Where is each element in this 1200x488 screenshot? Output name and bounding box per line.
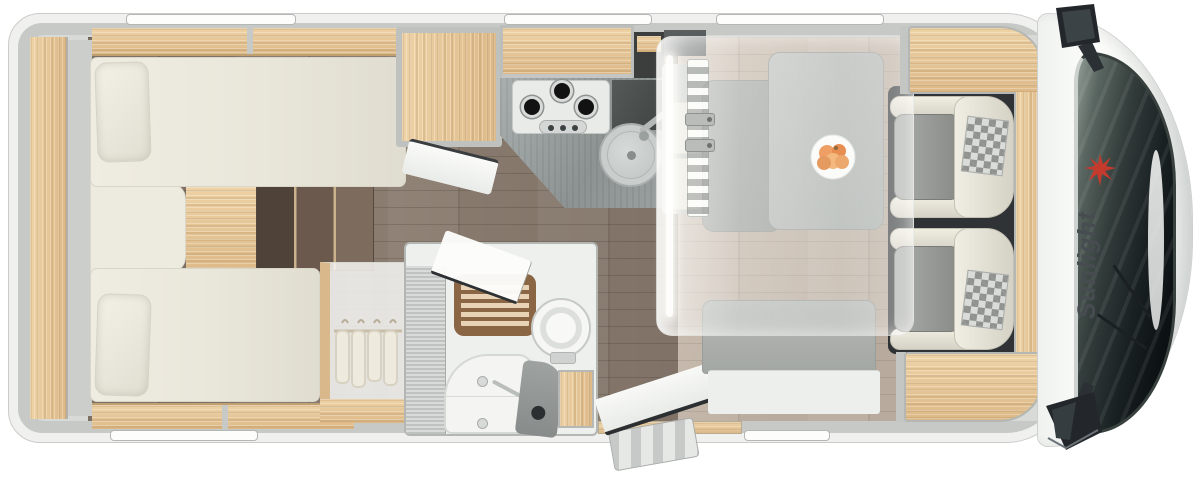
pillow-bottom-bed xyxy=(94,293,152,397)
gas-hob xyxy=(512,80,610,134)
seat-checker-pillow xyxy=(961,116,1010,177)
hood-highlight xyxy=(1148,150,1164,330)
window-bottom-rear xyxy=(110,430,258,441)
hob-knobs xyxy=(539,120,587,134)
wardrobe-foot-of-bed xyxy=(396,27,502,147)
gas-burner-icon xyxy=(521,96,543,118)
cab-surround-shelf-bottom xyxy=(904,352,1044,422)
bed-latch xyxy=(685,113,715,126)
window-bottom-dinette xyxy=(744,430,830,441)
bed-ladder xyxy=(687,59,709,217)
sink-icon xyxy=(599,123,663,187)
gas-burner-icon xyxy=(575,96,597,118)
wardrobe-hanging xyxy=(320,262,404,400)
wardrobe-base-shelf xyxy=(320,399,404,423)
motorhome-floorplan: Sunlight xyxy=(0,0,1200,488)
wardrobe-interior xyxy=(402,33,496,141)
bathroom-tambour-wall xyxy=(406,266,446,434)
brand-logo-text: Sunlight xyxy=(1074,180,1100,350)
rear-wall-shelf xyxy=(30,37,68,419)
cab-surround-shelf-top xyxy=(908,26,1044,94)
center-infill-cushion xyxy=(90,183,186,273)
hanger-icon-group xyxy=(330,263,404,401)
fruit-plate-icon xyxy=(810,134,856,180)
window-top-rear xyxy=(126,14,296,25)
side-mirror-top-icon xyxy=(1048,2,1114,74)
bed-mid-platform xyxy=(186,183,256,273)
overhead-cabinet-bottom-bedroom xyxy=(92,403,354,429)
gas-burner-icon xyxy=(551,80,573,102)
cabinet-divider xyxy=(247,28,253,54)
seat-checker-pillow xyxy=(961,270,1010,331)
window-top-kitchen xyxy=(504,14,652,25)
bed-steps xyxy=(256,183,374,271)
side-mirror-bottom-icon xyxy=(1036,380,1116,458)
toilet-icon xyxy=(531,298,591,358)
bed-latch xyxy=(685,139,715,152)
kitchen-overhead-cabinet xyxy=(500,25,634,80)
overhead-cabinet-top-bedroom xyxy=(92,28,420,56)
bathroom-cabinet xyxy=(558,370,594,428)
pillow-top-bed xyxy=(94,61,151,163)
drop-down-bed-overlay xyxy=(656,36,914,336)
dinette-front-bench-seat xyxy=(708,370,880,414)
window-top-dinette xyxy=(716,14,884,25)
rear-headboard-band xyxy=(68,40,92,416)
cabinet-divider xyxy=(222,405,228,429)
